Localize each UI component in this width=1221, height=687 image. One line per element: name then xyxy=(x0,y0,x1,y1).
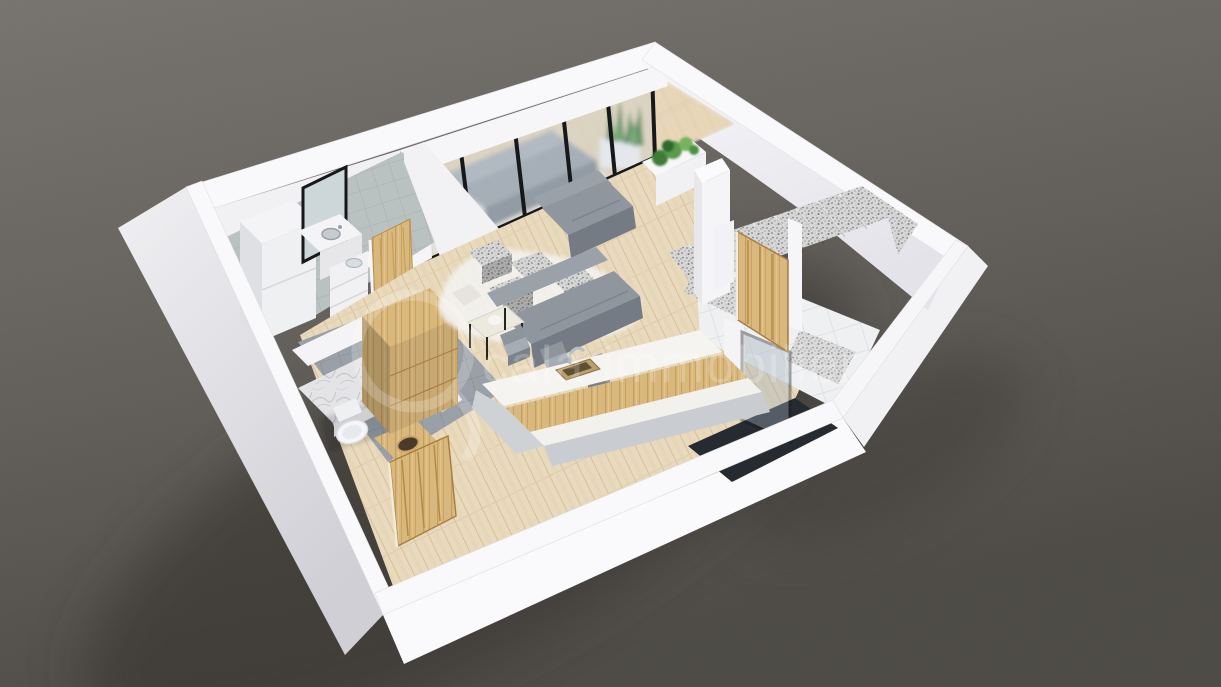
entry-door-frame xyxy=(788,218,802,332)
watermark-text: cala immobilier xyxy=(482,336,859,394)
render-canvas: cala immobilier xyxy=(0,0,1221,687)
floor-plan-render: cala immobilier xyxy=(0,0,1221,687)
white-pillar-b xyxy=(714,220,734,290)
